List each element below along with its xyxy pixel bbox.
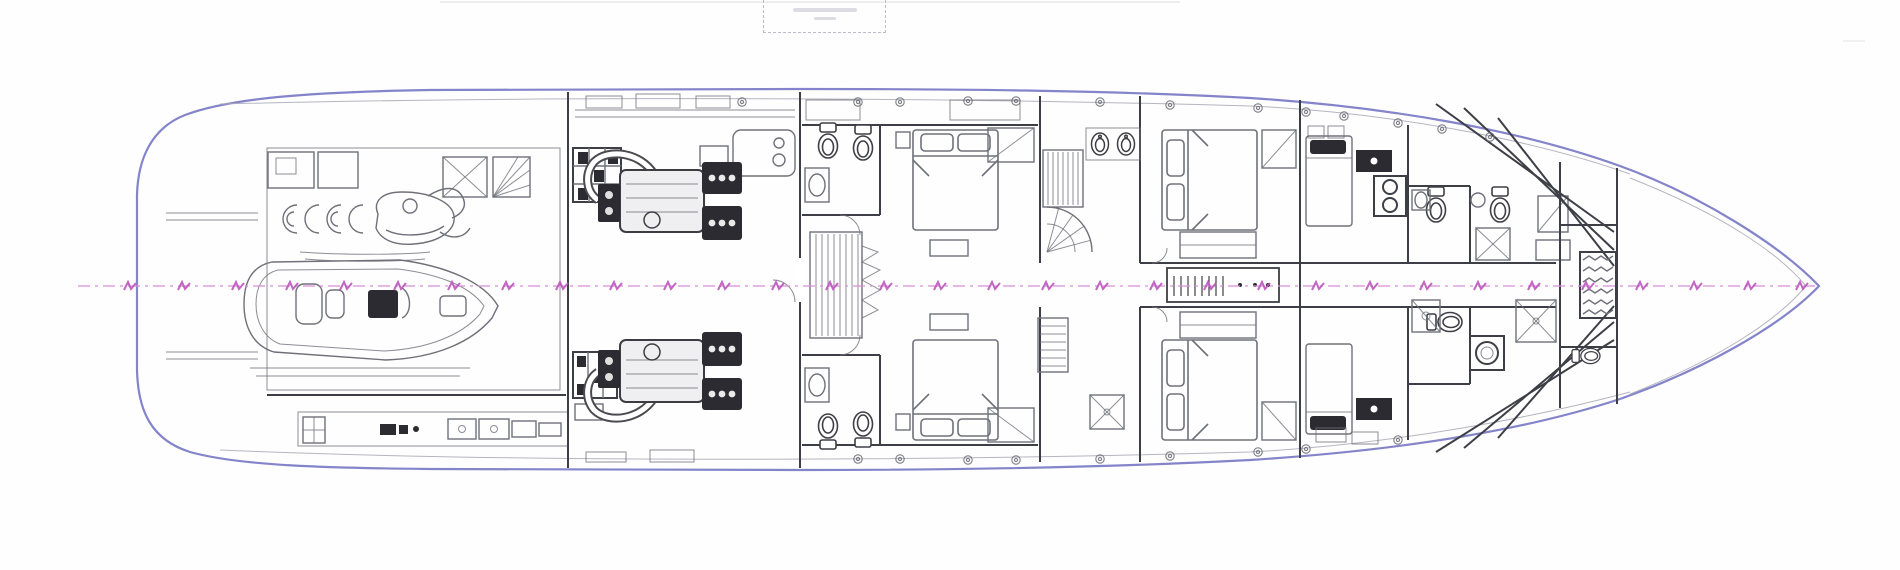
- vanity: [930, 314, 968, 330]
- deck-plan-drawing: [0, 0, 1900, 570]
- station-marker: [1690, 282, 1702, 290]
- washer-stack: [1374, 176, 1406, 216]
- guest-cabins-aft: [802, 100, 1038, 449]
- sink: [1118, 133, 1135, 155]
- engine-starboard: [588, 332, 742, 418]
- station-marker: [1312, 282, 1324, 290]
- bathroom-aft-top: [805, 123, 873, 235]
- centerline: [78, 282, 1819, 290]
- garage-side-passage: [267, 395, 568, 446]
- tender-rollers: [283, 205, 363, 233]
- porthole-icon: [1254, 104, 1262, 112]
- station-marker: [1474, 282, 1486, 290]
- stair-lobby: [1038, 96, 1140, 462]
- station-marker: [610, 282, 622, 290]
- stowage-lockers: [268, 152, 358, 188]
- station-marker: [1042, 282, 1054, 290]
- station-marker: [772, 282, 784, 290]
- station-marker: [502, 282, 514, 290]
- double-bed: [1162, 340, 1257, 440]
- station-marker: [232, 282, 244, 290]
- crew-cabin-top: [1306, 126, 1406, 226]
- sink: [1092, 133, 1109, 155]
- station-marker: [934, 282, 946, 290]
- double-bed: [1162, 130, 1257, 230]
- toilet: [1572, 348, 1600, 363]
- station-marker: [1528, 282, 1540, 290]
- porthole-icon: [1302, 445, 1310, 453]
- station-marker: [178, 282, 190, 290]
- stair-main: [810, 232, 880, 338]
- station-marker: [1796, 282, 1808, 290]
- station-marker: [124, 282, 136, 290]
- station-marker: [1636, 282, 1648, 290]
- jet-ski: [300, 189, 470, 262]
- porthole-icon: [1302, 108, 1310, 116]
- station-marker: [1096, 282, 1108, 290]
- porthole-icon: [1438, 125, 1446, 133]
- station-marker: [556, 282, 568, 290]
- double-bed: [913, 130, 998, 230]
- yacht-ga-plan: [0, 0, 1900, 570]
- porthole-icon: [1166, 101, 1174, 109]
- station-marker: [718, 282, 730, 290]
- station-marker: [664, 282, 676, 290]
- crew-cabin-bottom: [1306, 344, 1392, 444]
- engine-room: [568, 92, 805, 468]
- tender-boat: [244, 260, 498, 376]
- station-marker: [1420, 282, 1432, 290]
- tender-console: [368, 290, 398, 318]
- corridor-forward: [1140, 130, 1556, 440]
- tender-garage: [166, 148, 568, 446]
- crew-wc-bottom: [1408, 300, 1556, 440]
- double-bed: [913, 340, 998, 440]
- hatch-gratings: [443, 157, 530, 197]
- station-marker: [340, 282, 352, 290]
- vanity: [930, 240, 968, 256]
- station-marker: [1744, 282, 1756, 290]
- crew-wc-top: [1408, 125, 1570, 263]
- station-marker: [988, 282, 1000, 290]
- porthole-icon: [964, 456, 972, 464]
- hull-outline: [137, 89, 1819, 470]
- station-marker: [1150, 282, 1162, 290]
- porthole-icon: [1394, 436, 1402, 444]
- porthole-icon: [964, 97, 972, 105]
- station-marker: [1366, 282, 1378, 290]
- bathroom-aft-bottom: [805, 335, 873, 449]
- crew-quarters: [1300, 100, 1570, 458]
- engine-port: [588, 154, 742, 240]
- station-marker: [880, 282, 892, 290]
- porthole-icon: [1166, 452, 1174, 460]
- station-marker: [1582, 282, 1594, 290]
